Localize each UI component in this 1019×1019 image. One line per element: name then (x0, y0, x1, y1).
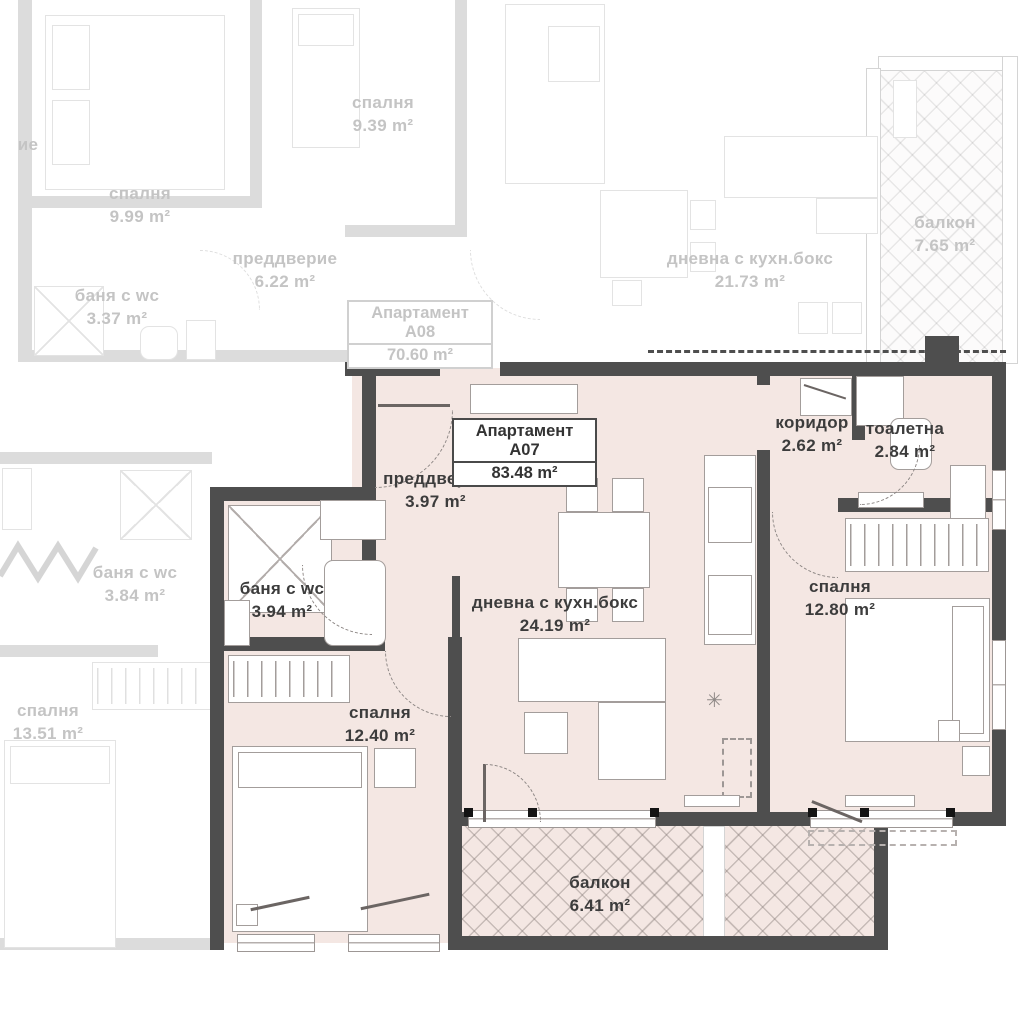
clipped-room-label: ие (0, 134, 56, 157)
shower-icon (120, 470, 192, 540)
room-area: 6.41 m² (540, 895, 660, 918)
coffee-table-icon (524, 712, 568, 754)
blanket-fold-icon (938, 720, 960, 742)
room-name: преддверие (215, 248, 355, 271)
room-name: тоалетна (845, 418, 965, 441)
radiator-icon (845, 795, 915, 807)
floor-plan: спалня 9.99 m² спалня 9.39 m² преддверие… (0, 0, 1019, 1019)
apartment-area: 83.48 m² (454, 463, 595, 485)
room-name: дневна с кухн.бокс (650, 248, 850, 271)
wardrobe-icon (92, 662, 212, 710)
door-pier (946, 808, 955, 817)
wall (345, 225, 467, 237)
washbasin-icon (186, 320, 216, 360)
window-frame (992, 640, 1006, 730)
room-name: спалня (320, 702, 440, 725)
room-area: 3.94 m² (217, 601, 347, 624)
door-pier (464, 808, 473, 817)
washbasin-icon (2, 468, 32, 530)
room-area: 3.97 m² (368, 491, 503, 514)
planter-icon (893, 80, 917, 138)
wall (0, 452, 212, 464)
chair-icon (612, 280, 642, 306)
room-area: 21.73 m² (650, 271, 850, 294)
sink-cabinet-icon (708, 575, 752, 635)
wall (500, 362, 1006, 376)
door-pier (860, 808, 869, 817)
pillow-icon (52, 25, 90, 90)
room-name: спалня (75, 183, 205, 206)
apartment-area: 70.60 m² (349, 345, 491, 367)
juliet-ledge (808, 830, 957, 846)
room-area: 3.37 m² (52, 308, 182, 331)
apartment-name: Апартамент A07 (454, 420, 595, 463)
chair-icon (612, 478, 644, 512)
room-label-a08-living: дневна с кухн.бокс 21.73 m² (650, 248, 850, 294)
wardrobe-icon (845, 518, 989, 572)
door-leaf (378, 404, 450, 407)
room-area: 3.84 m² (70, 585, 200, 608)
nightstand-icon (962, 746, 990, 776)
fridge-symbol-icon: ✳ (706, 688, 723, 713)
room-label-a08-bath: баня с wc 3.37 m² (52, 285, 182, 331)
wall (703, 826, 725, 940)
room-area: 13.51 m² (0, 723, 96, 746)
entry-closet-icon (470, 384, 578, 414)
room-label-a07-balcony: балкон 6.41 m² (540, 872, 660, 918)
apartment-title-a08: Апартамент A08 70.60 m² (347, 300, 493, 369)
wall (448, 826, 462, 950)
room-area: 12.40 m² (320, 725, 440, 748)
sofa-icon (518, 638, 666, 702)
room-name: балкон (540, 872, 660, 895)
wall (210, 487, 376, 501)
room-label-a07-toilet: тоалетна 2.84 m² (845, 418, 965, 464)
room-label-a07-bedroom-left: спалня 12.40 m² (320, 702, 440, 748)
room-name: баня с wc (70, 562, 200, 585)
room-area: 9.39 m² (318, 115, 448, 138)
wall (448, 936, 888, 950)
room-area: 12.80 m² (780, 599, 900, 622)
sofa-icon (724, 136, 878, 198)
room-area: 24.19 m² (455, 615, 655, 638)
room-label-left-bedroom: спалня 13.51 m² (0, 700, 96, 746)
wall (953, 812, 1006, 826)
pillow-icon (238, 752, 362, 788)
wall (757, 450, 770, 812)
room-area: 9.99 m² (75, 206, 205, 229)
kitchen-dashed-cabinet (722, 738, 752, 798)
wall (455, 0, 467, 237)
wall (757, 362, 770, 385)
wall (250, 0, 262, 205)
nightstand-icon (374, 748, 416, 788)
wall (0, 645, 158, 657)
door-pier (650, 808, 659, 817)
room-name: ие (0, 134, 56, 157)
room-label-left-bath: баня с wc 3.84 m² (70, 562, 200, 608)
washing-machine-icon (798, 302, 828, 334)
sofa-icon (598, 702, 666, 780)
wall (18, 0, 32, 362)
room-name: дневна с кухн.бокс (455, 592, 655, 615)
room-area: 2.84 m² (845, 441, 965, 464)
stove-icon (708, 487, 752, 543)
wall (757, 812, 810, 826)
dining-table-icon (558, 512, 650, 588)
window-frame (348, 934, 440, 952)
wall (656, 812, 757, 826)
balcony-door-frame (810, 810, 953, 828)
pillow-icon (10, 746, 110, 784)
room-label-a07-bath: баня с wc 3.94 m² (217, 578, 347, 624)
window-frame (992, 470, 1006, 530)
room-area: 7.65 m² (885, 235, 1005, 258)
apartment-title-a07: Апартамент A07 83.48 m² (452, 418, 597, 487)
sofa-icon (816, 198, 878, 234)
wall (878, 56, 1016, 71)
door-pier (808, 808, 817, 817)
apartment-name: Апартамент A08 (349, 302, 491, 345)
room-name: баня с wc (52, 285, 182, 308)
wall (992, 362, 1006, 826)
room-label-a08-balcony: балкон 7.65 m² (885, 212, 1005, 258)
room-name: спалня (0, 700, 96, 723)
room-label-a07-living: дневна с кухн.бокс 24.19 m² (455, 592, 655, 638)
wall (210, 487, 224, 950)
chair-icon (690, 200, 716, 230)
window-frame (237, 934, 315, 952)
room-label-a08-bedroom-mid: спалня 9.39 m² (318, 92, 448, 138)
pillow-icon (952, 606, 984, 734)
room-name: спалня (318, 92, 448, 115)
room-label-a08-vestibule: преддверие 6.22 m² (215, 248, 355, 294)
room-name: спалня (780, 576, 900, 599)
dashed-boundary (648, 350, 1006, 353)
room-name: баня с wc (217, 578, 347, 601)
room-label-a08-bedroom-left: спалня 9.99 m² (75, 183, 205, 229)
room-label-a07-bedroom-right: спалня 12.80 m² (780, 576, 900, 622)
stove-icon (548, 26, 600, 82)
wardrobe-icon (228, 655, 350, 703)
pillow-icon (298, 14, 354, 46)
radiator-icon (684, 795, 740, 807)
washing-machine-icon (832, 302, 862, 334)
wall (1002, 56, 1018, 364)
door-pier (528, 808, 537, 817)
toilet-icon (140, 326, 178, 360)
room-area: 6.22 m² (215, 271, 355, 294)
pillow-icon (52, 100, 90, 165)
room-name: балкон (885, 212, 1005, 235)
